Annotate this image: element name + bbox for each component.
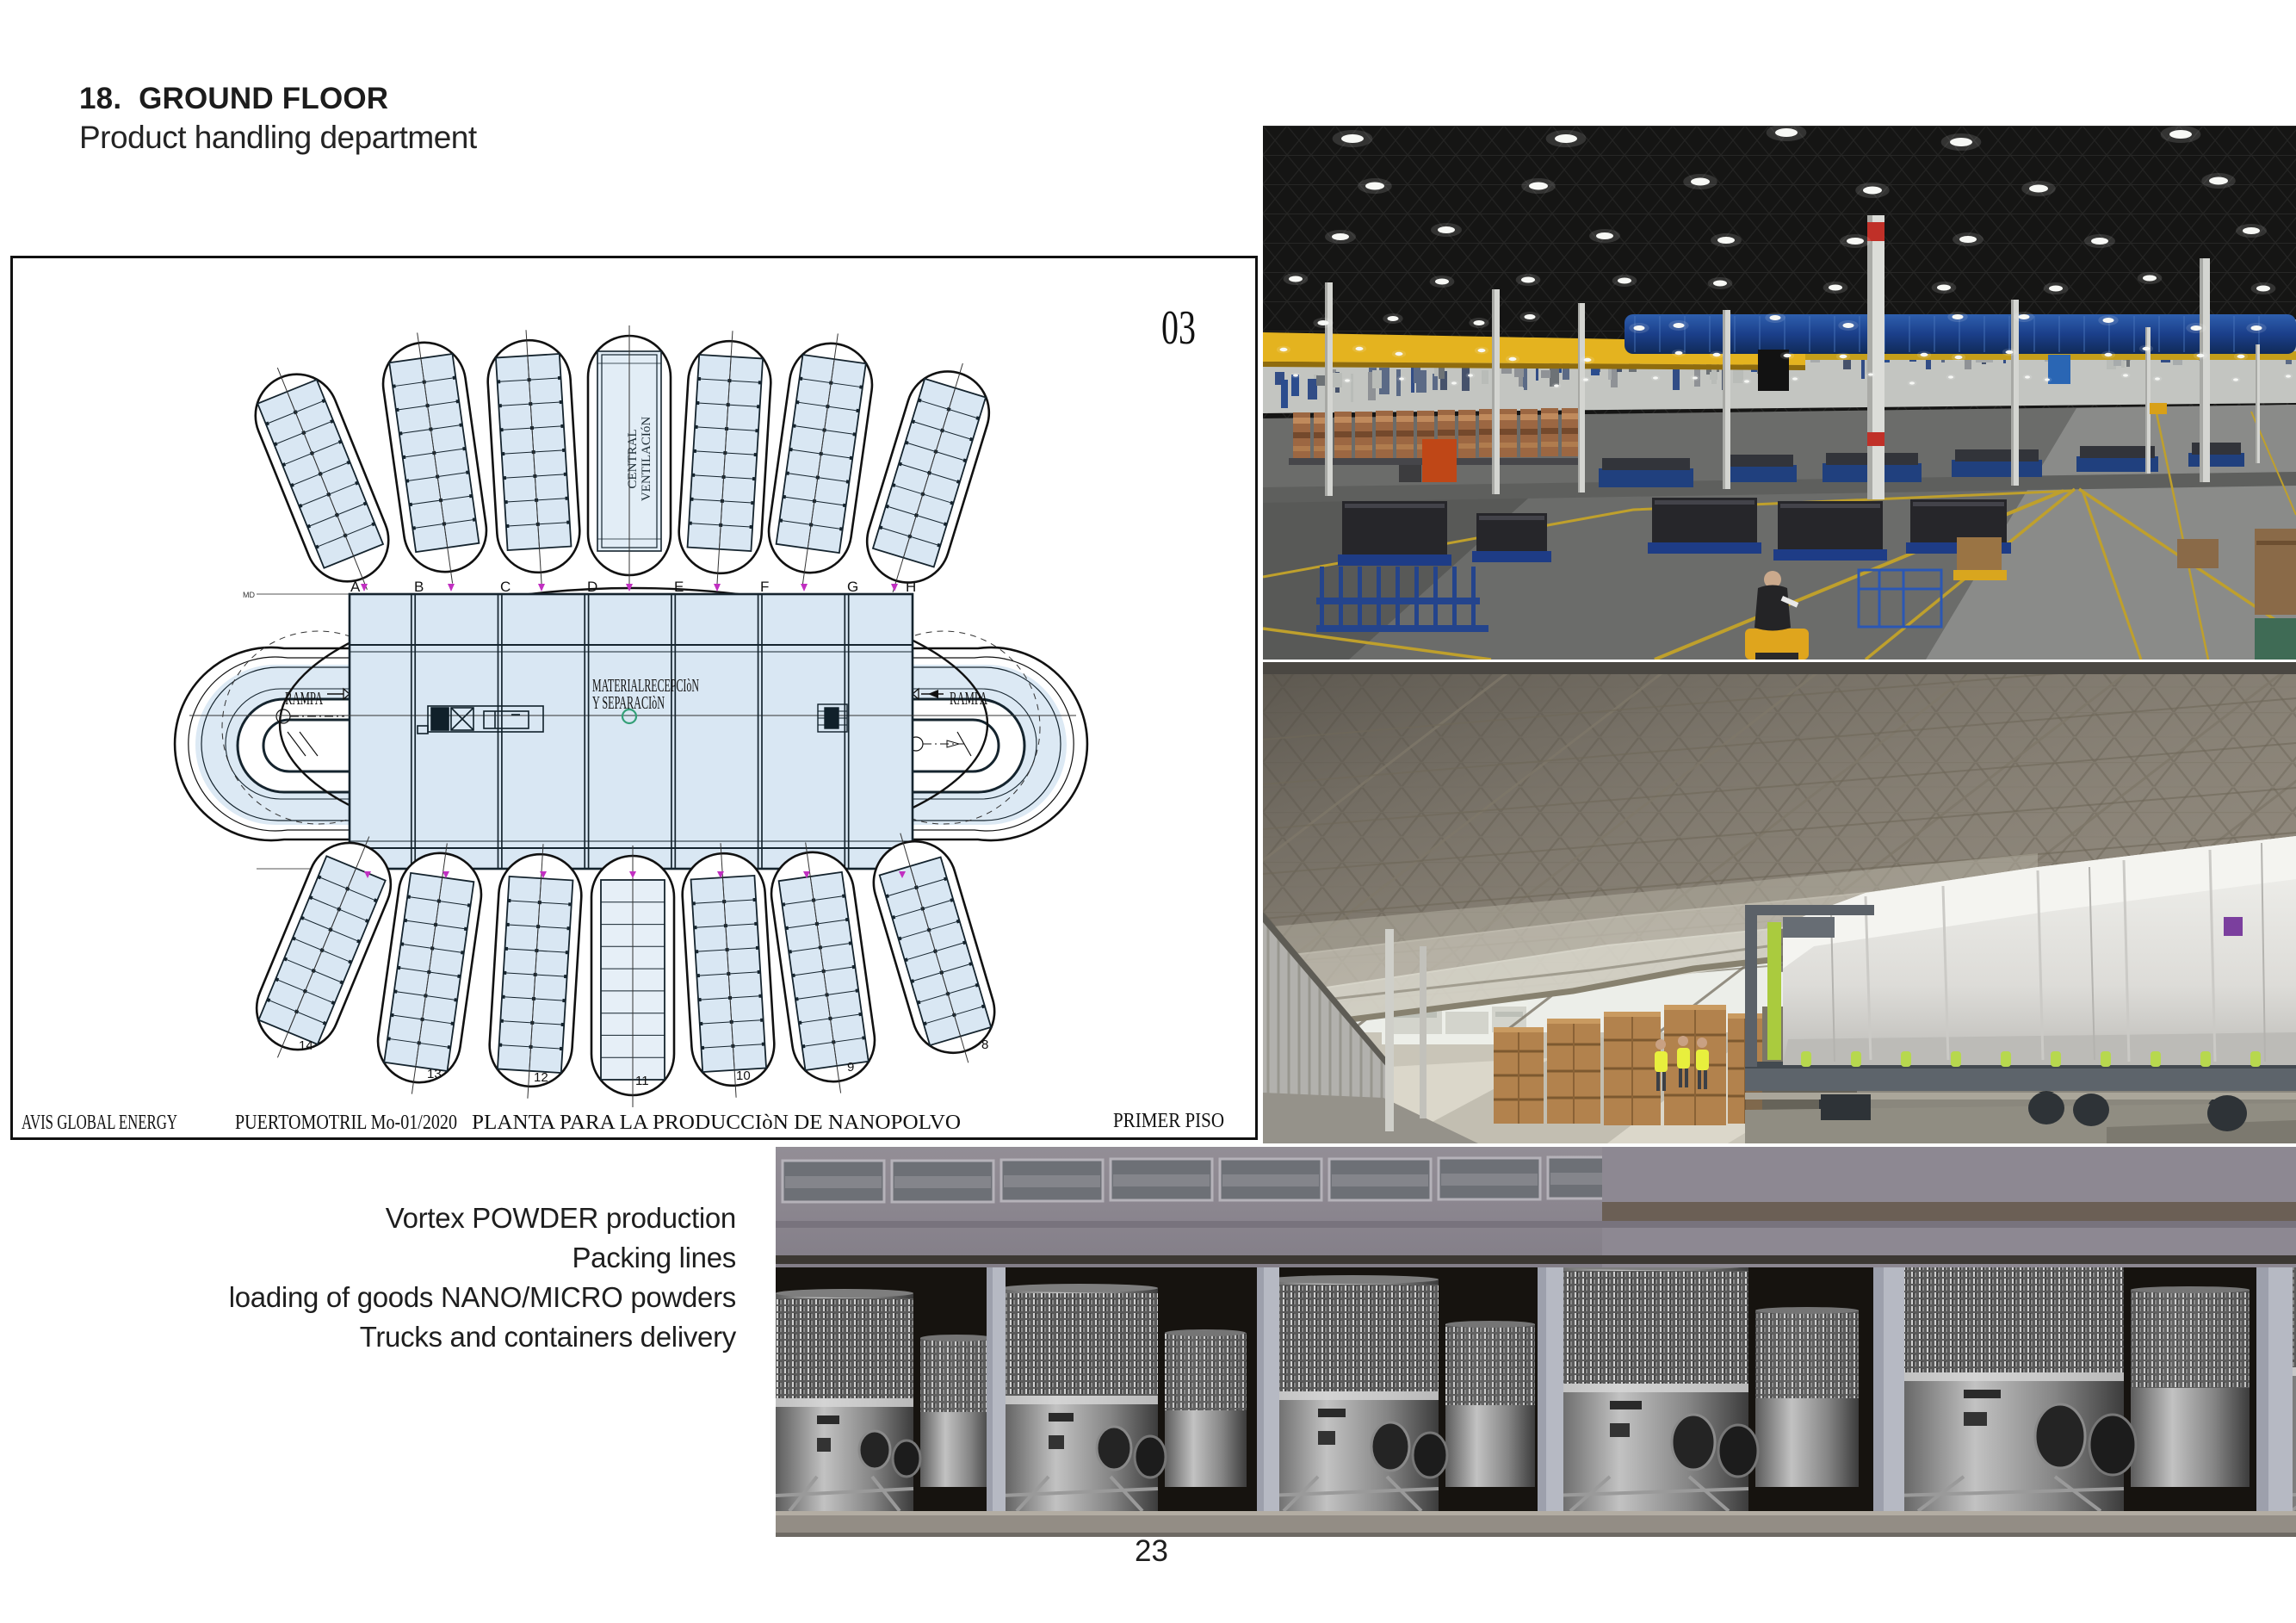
svg-text:F: F — [760, 579, 769, 595]
svg-text:D: D — [587, 579, 597, 595]
svg-text:12: 12 — [534, 1070, 548, 1085]
svg-text:8: 8 — [981, 1038, 988, 1052]
svg-text:G: G — [847, 579, 858, 595]
svg-text:B: B — [414, 579, 424, 595]
svg-text:10: 10 — [736, 1069, 751, 1083]
svg-text:MD: MD — [243, 591, 255, 599]
svg-text:11: 11 — [635, 1074, 649, 1088]
svg-text:VENTILACIóN: VENTILACIóN — [640, 417, 653, 501]
svg-text:PRIMER PISO: PRIMER PISO — [1113, 1110, 1224, 1132]
svg-text:E: E — [674, 579, 684, 595]
svg-text:PUERTOMOTRIL Mo-01/2020: PUERTOMOTRIL Mo-01/2020 — [235, 1112, 457, 1134]
svg-text:C: C — [500, 579, 511, 595]
svg-text:CENTRAL: CENTRAL — [626, 429, 640, 488]
svg-text:AVIS GLOBAL ENERGY: AVIS GLOBAL ENERGY — [22, 1112, 177, 1134]
svg-text:03: 03 — [1161, 301, 1196, 355]
svg-text:13: 13 — [427, 1067, 442, 1081]
svg-text:9: 9 — [847, 1060, 854, 1075]
svg-text:14: 14 — [299, 1038, 313, 1053]
svg-text:PLANTA PARA LA PRODUCCIòN DE N: PLANTA PARA LA PRODUCCIòN DE NANOPOLVO — [472, 1112, 961, 1134]
